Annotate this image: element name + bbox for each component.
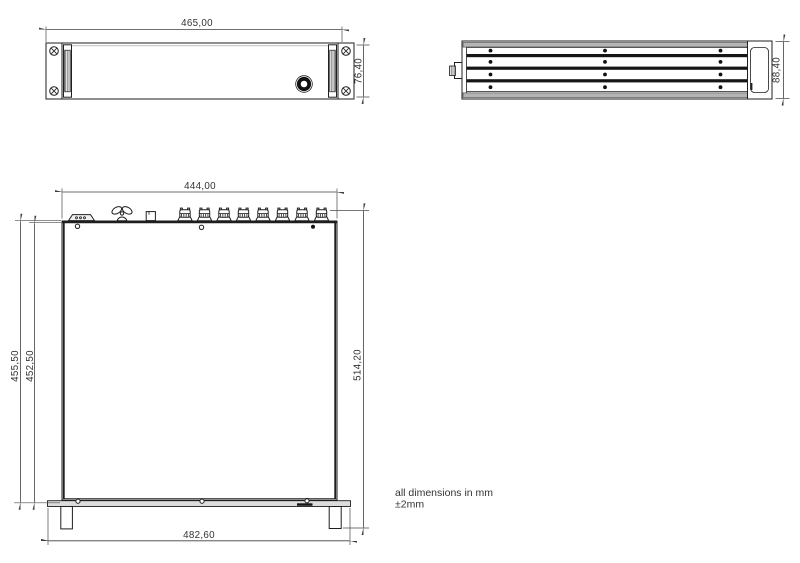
foot-left [61,507,73,529]
chassis-outline [62,221,337,500]
panel-marking [297,503,313,506]
top-view: 444,00 455,50 452,50 514,20 482,60 [10,181,369,545]
front-panel [62,43,338,99]
front-handle-left [64,45,72,97]
thumbscrew-icon [450,63,463,79]
top-height-total-label: 514,20 [353,349,364,381]
connector-icon [314,208,328,221]
dim-front-width: 465,00 [46,18,342,42]
side-height-label: 88,40 [772,57,783,83]
top-width-label: 444,00 [184,181,216,192]
connector-icon [256,208,270,221]
dim-panel-width: 482,60 [48,508,350,545]
dim-side-height: 88,40 [772,42,790,99]
dim-top-height-inner: 452,50 [25,223,61,503]
front-height-label: 76,40 [354,58,365,84]
side-body [462,41,772,99]
wing-screw-icon [111,205,134,221]
connector-icon [295,208,309,221]
rear-connectors [178,208,329,221]
note-line2: ±2mm [395,499,424,511]
dim-front-height: 76,40 [354,45,370,97]
connector-icon [197,208,211,221]
connector-icon [236,208,250,221]
front-width-label: 465,00 [181,18,213,29]
connector-icon [217,208,231,221]
top-height-inner-label: 452,50 [25,350,36,382]
note-line1: all dimensions in mm [395,487,493,499]
top-height-outer-label: 455,50 [10,350,21,382]
front-view: 465,00 76,40 [46,18,370,99]
panel-width-label: 482,60 [183,530,215,541]
rear-handle-plate [69,215,95,221]
drawing-note: all dimensions in mm ±2mm [395,487,493,511]
foot-right [329,507,341,529]
technical-drawing-page: 465,00 76,40 [0,0,800,558]
connector-icon [178,208,192,221]
front-handle-right [329,45,337,97]
rack-unit-drawing: 465,00 76,40 [0,0,800,558]
rear-latch [146,212,155,221]
connector-icon [275,208,289,221]
side-front-panel [748,41,773,99]
side-view: 88,40 [450,41,790,99]
